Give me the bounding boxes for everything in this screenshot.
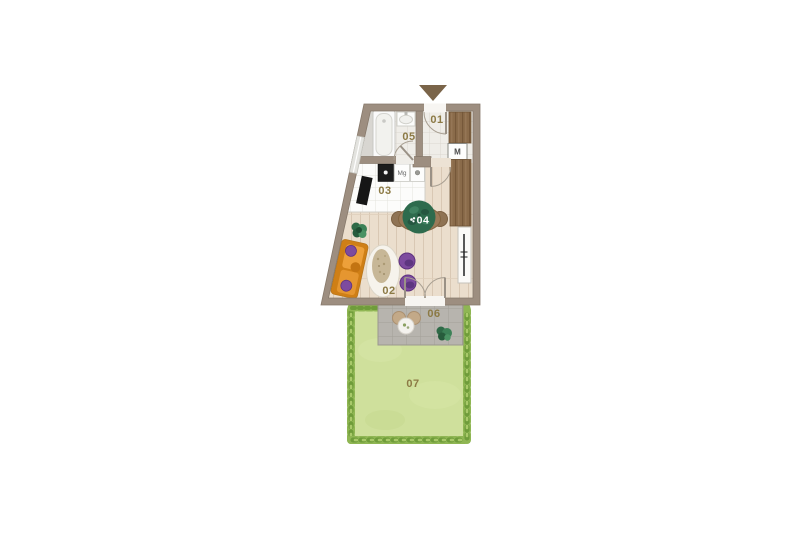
tall-wardrobe [450,160,471,227]
sink-basin [400,115,413,123]
sink-tap [405,112,408,115]
corner-plant-icon [352,223,368,239]
right-window [458,227,471,283]
room-label-living: 02 [382,285,395,297]
terrace-table [398,318,414,334]
meter-badge: M [454,148,461,157]
room-label-bathroom: 05 [402,131,415,143]
room-label-terrace: 06 [427,308,440,320]
bathtub-drain [382,119,386,123]
lawn-shade [365,410,405,430]
entry-wardrobe [449,112,471,143]
appliance-badge: Mg [397,170,406,177]
room-label-entrance: 01 [430,114,443,126]
terrace [378,303,463,345]
pouf-shade [406,282,415,289]
terrace-table-decor [407,326,410,329]
pouf-shade [405,260,414,267]
appliance-dot-icon [415,171,419,175]
wall-stub [413,157,431,168]
floor-plan-page: 01 05 03 04 02 06 07 M Mg [0,0,800,560]
floor-plan-canvas: 01 05 03 04 02 06 07 M Mg [0,0,800,560]
room-label-garden: 07 [406,378,419,390]
terrace-table-decor [403,323,406,326]
wall-bath-hall [416,111,423,157]
room-label-kitchen: 03 [378,185,391,197]
north-arrow-icon [419,85,447,101]
cooktop-burner-dot [384,171,388,175]
room-label-dining: 04 [417,215,430,227]
